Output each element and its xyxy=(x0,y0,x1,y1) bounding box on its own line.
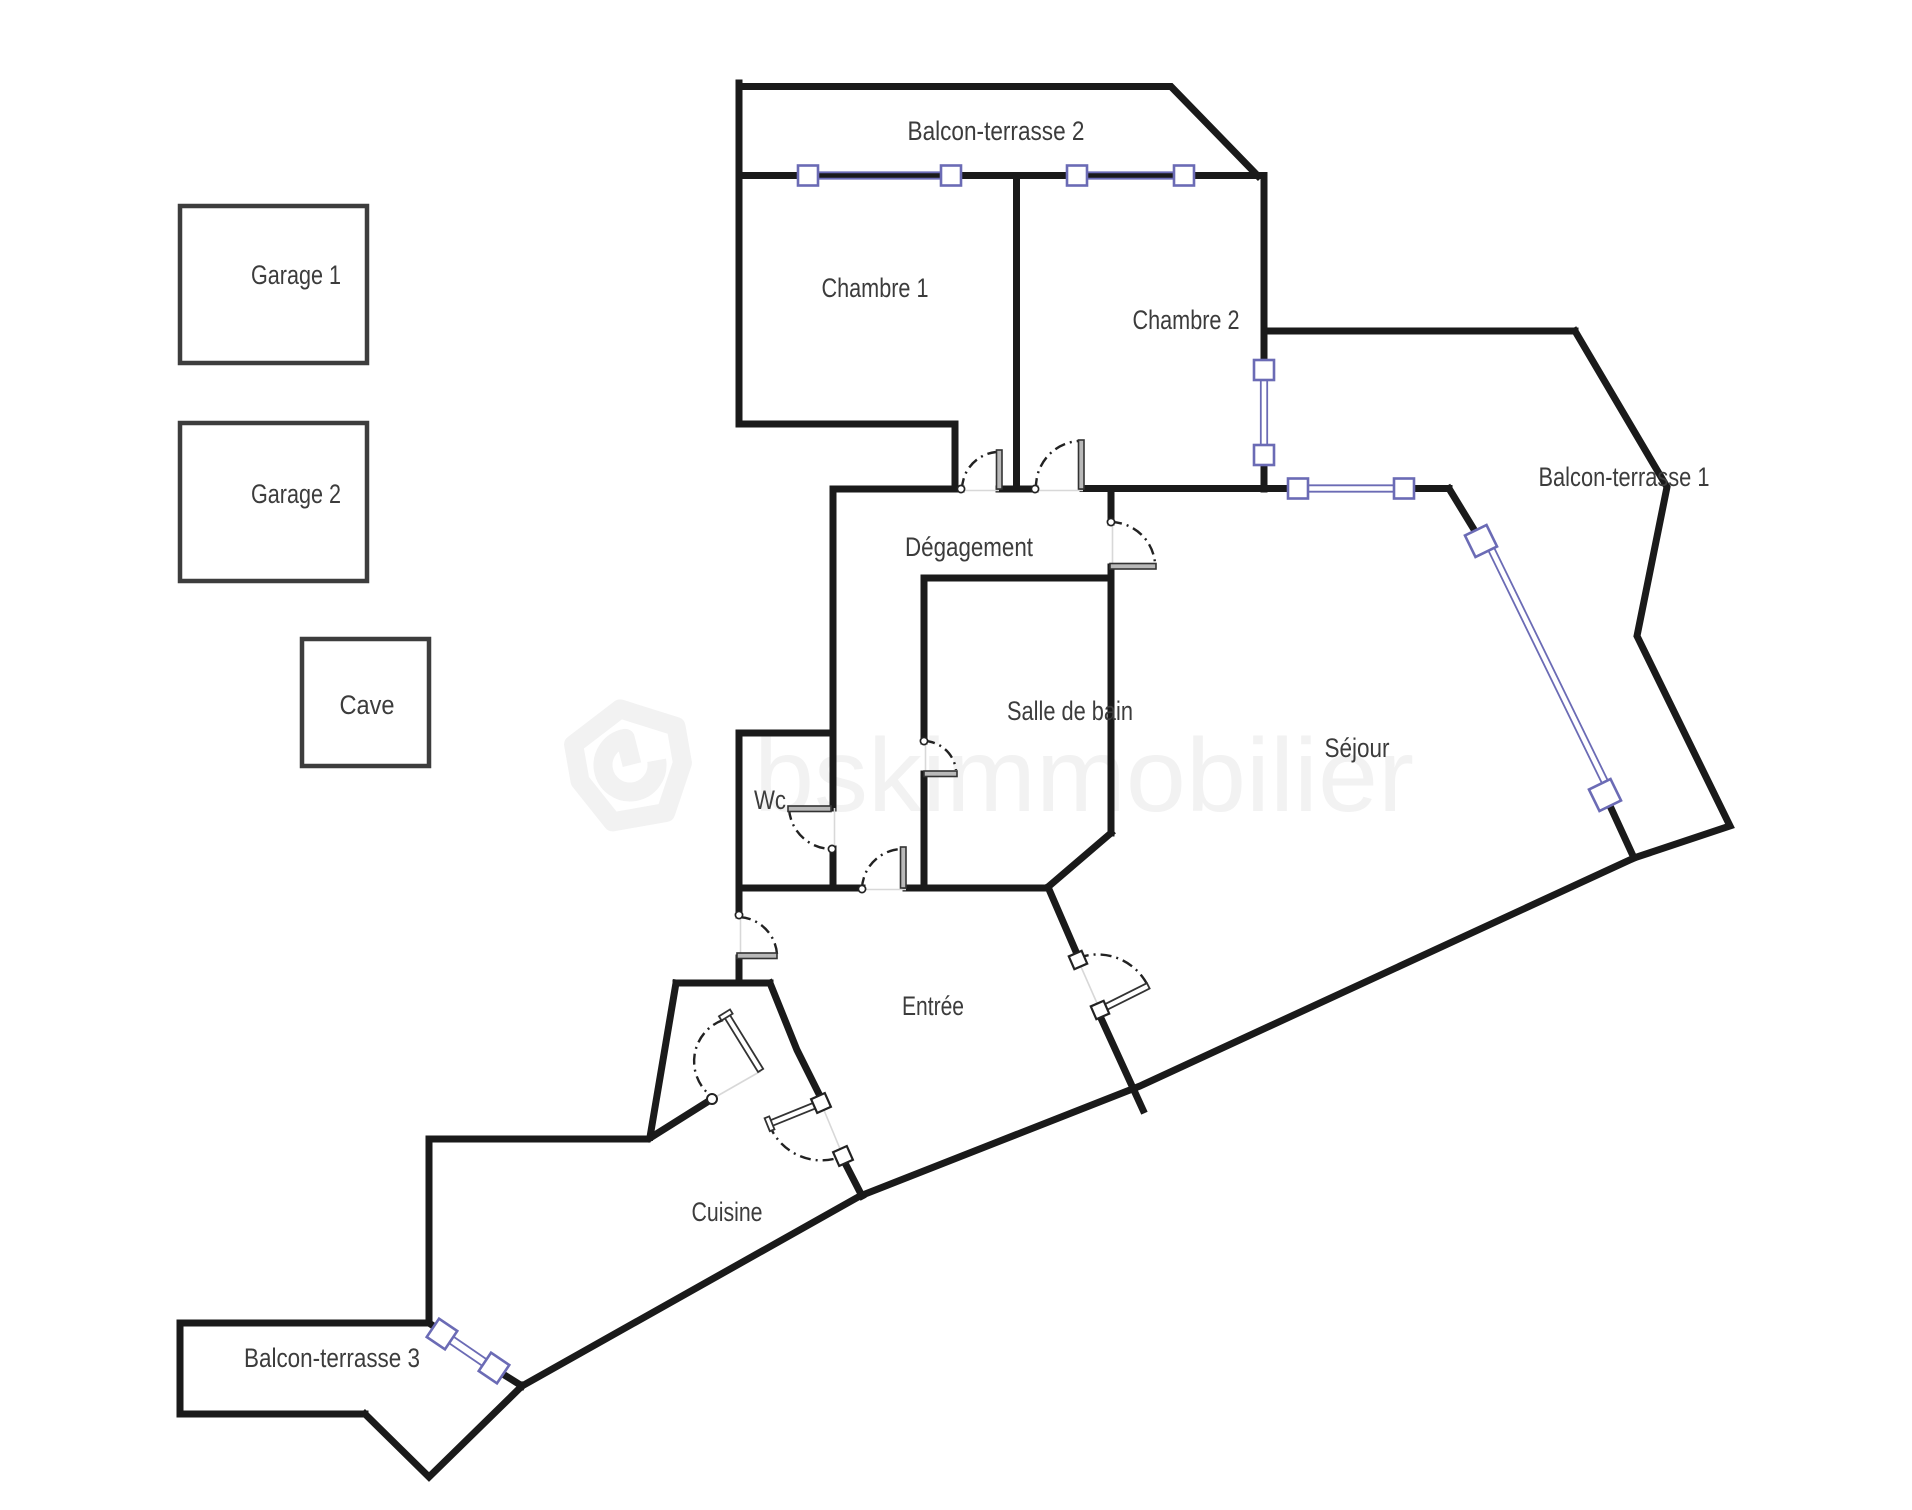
svg-text:Cave: Cave xyxy=(340,690,395,720)
svg-text:Balcon-terrasse 2: Balcon-terrasse 2 xyxy=(908,116,1085,146)
svg-text:Salle de bain: Salle de bain xyxy=(1007,696,1133,726)
svg-text:bskimmobilier: bskimmobilier xyxy=(754,718,1414,834)
svg-text:Balcon-terrasse 3: Balcon-terrasse 3 xyxy=(244,1343,420,1373)
svg-text:Chambre 2: Chambre 2 xyxy=(1133,305,1240,335)
svg-text:Balcon-terrasse 1: Balcon-terrasse 1 xyxy=(1539,462,1710,492)
svg-text:Dégagement: Dégagement xyxy=(905,532,1033,562)
svg-text:Wc: Wc xyxy=(754,785,786,815)
svg-text:Entrée: Entrée xyxy=(902,991,964,1021)
svg-text:Cuisine: Cuisine xyxy=(692,1197,763,1227)
svg-text:Garage 1: Garage 1 xyxy=(251,260,341,290)
svg-text:Séjour: Séjour xyxy=(1325,733,1390,763)
svg-text:Chambre 1: Chambre 1 xyxy=(822,273,929,303)
svg-text:Garage 2: Garage 2 xyxy=(251,479,341,509)
